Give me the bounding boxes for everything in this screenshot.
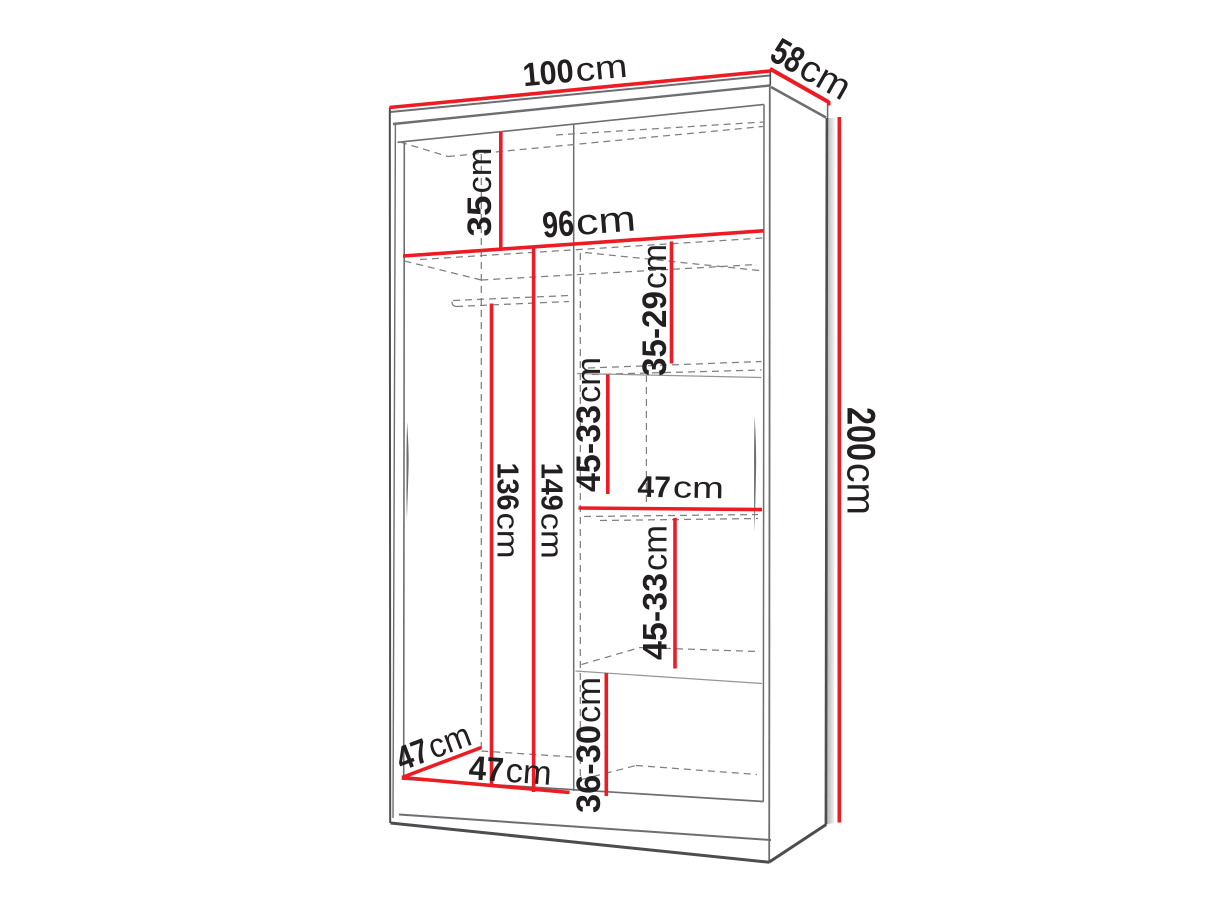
svg-text:47cm: 47cm xyxy=(468,749,553,793)
svg-text:36-30cm: 36-30cm xyxy=(570,677,608,813)
svg-text:35-29cm: 35-29cm xyxy=(636,244,674,376)
svg-text:35cm: 35cm xyxy=(461,148,499,237)
svg-text:96cm: 96cm xyxy=(541,197,637,245)
svg-text:45-33cm: 45-33cm xyxy=(570,357,608,492)
svg-text:47cm: 47cm xyxy=(637,471,724,506)
svg-text:45-33cm: 45-33cm xyxy=(637,525,675,660)
